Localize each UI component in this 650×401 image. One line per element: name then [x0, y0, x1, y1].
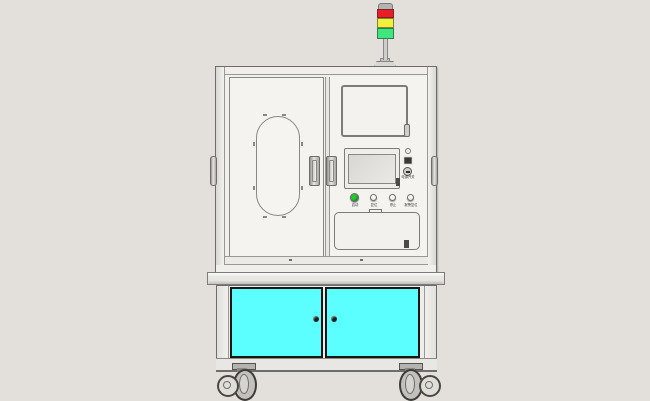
window-clip — [263, 114, 267, 116]
upper-cabinet-bottom-band — [225, 256, 428, 265]
left-door-handle — [309, 156, 320, 186]
caster-left — [216, 362, 262, 398]
window-clip — [282, 114, 286, 116]
handle-grip — [329, 160, 334, 182]
button-label: 复位 — [365, 204, 383, 207]
alarm-reset-button — [407, 194, 414, 201]
display-window-latch — [404, 124, 410, 137]
tower-light-yellow-segment — [377, 18, 394, 28]
door-viewing-window — [256, 116, 300, 216]
button-label: 停止 — [384, 204, 402, 207]
control-display-window — [341, 85, 408, 137]
handle-grip — [312, 160, 317, 182]
window-clip — [301, 186, 303, 190]
tower-light-red-segment — [377, 9, 394, 18]
lower-frame-column-right — [424, 286, 436, 363]
access-panel-latch — [404, 240, 409, 248]
window-clip — [253, 142, 255, 146]
stop-button — [389, 194, 396, 201]
door-knob-right — [331, 316, 337, 322]
start-button-green — [350, 193, 359, 202]
lower-cabinet-door-right — [325, 287, 420, 358]
screw-head — [289, 259, 292, 261]
window-clip — [282, 216, 286, 218]
table-top-band — [207, 272, 445, 285]
screw-head — [360, 259, 363, 261]
right-door-handle — [326, 156, 337, 186]
power-switch-label: 电源开关 — [399, 176, 418, 179]
power-indicator-light — [405, 148, 411, 154]
power-push-button — [404, 157, 412, 164]
left-side-handle — [210, 156, 217, 186]
upper-cabinet-top-bar — [216, 67, 436, 75]
leveling-foot-ring — [419, 375, 441, 397]
button-label: 报警复位 — [401, 204, 421, 207]
reset-button — [370, 194, 377, 201]
window-clip — [301, 142, 303, 146]
tower-light-green-segment — [377, 28, 394, 39]
upper-frame-column-left — [216, 67, 225, 272]
tower-pole — [383, 39, 388, 60]
window-clip — [263, 216, 267, 218]
leveling-foot-ring — [217, 375, 239, 397]
button-label: 启动 — [346, 204, 364, 207]
door-knob-left — [313, 316, 319, 322]
machine-render: 电源开关 启动 复位 停止 报警复位 — [0, 0, 650, 400]
lower-frame-column-left — [217, 286, 229, 363]
caster-right — [392, 362, 438, 398]
right-side-handle — [431, 156, 438, 186]
lower-cabinet-door-left — [230, 287, 323, 358]
window-clip — [253, 186, 255, 190]
hmi-screen — [348, 154, 396, 184]
